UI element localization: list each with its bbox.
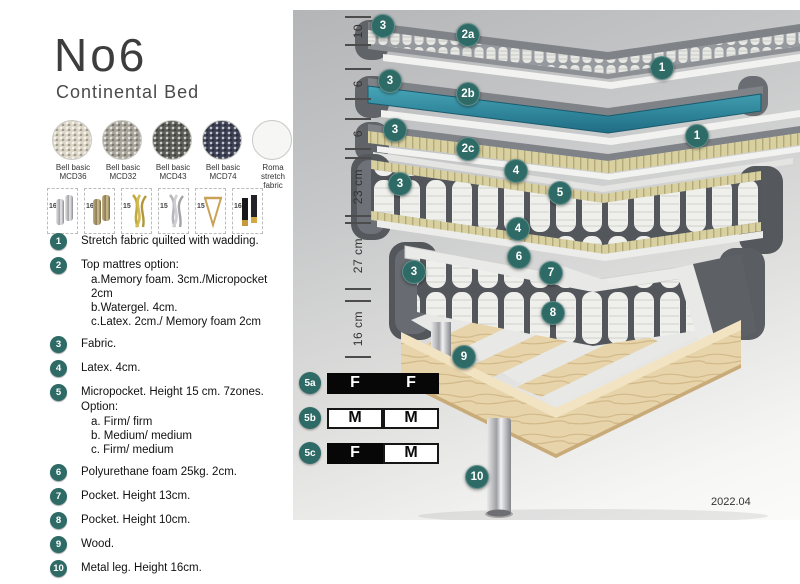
callout-badge: 10 [465, 465, 489, 489]
swatch-label: Bell basic [206, 163, 240, 172]
swatch-label: stretch fabric [261, 172, 285, 190]
callout-badge: 7 [539, 261, 563, 285]
firmness-cell: M [327, 408, 383, 429]
legend-item-suboption: c. Firm/ medium [91, 443, 288, 457]
legend-item-suboption: b. Medium/ medium [91, 429, 288, 443]
product-subtitle: Continental Bed [56, 82, 199, 103]
legend-item-text: Fabric. [81, 336, 116, 352]
callout-badge: 8 [541, 301, 565, 325]
dimension-ruler: 23 cm [337, 157, 379, 217]
dimension-label: 27 cm [351, 238, 365, 273]
firmness-row: 5b M M [299, 407, 439, 429]
firmness-cell: F [383, 373, 439, 394]
firmness-row-badge: 5b [299, 407, 321, 429]
callout-badge: 3 [402, 260, 426, 284]
tick-mark [345, 215, 371, 217]
dimension-label: 10 [351, 24, 365, 38]
legend-item: 9 Wood. [50, 536, 288, 553]
legend-item-number: 3 [50, 336, 67, 353]
tick-mark [345, 98, 371, 100]
legend-item: 6 Polyurethane foam 25kg. 2cm. [50, 464, 288, 481]
leg-option: 16 [47, 188, 78, 234]
swatch-label: MCD32 [109, 172, 136, 181]
tick-mark [345, 148, 371, 150]
twist-gold-leg-icon [128, 193, 150, 229]
legend-item-suboption: a. Firm/ firm [91, 415, 288, 429]
cylinder-silver-leg-icon [54, 193, 76, 229]
firmness-cell: F [327, 373, 383, 394]
legend-item: 8 Pocket. Height 10cm. [50, 512, 288, 529]
swatch-label: MCD43 [159, 172, 186, 181]
legend-item-text: Pocket. Height 10cm. [81, 512, 190, 528]
dimension-label: 16 cm [351, 311, 365, 346]
leg-option: 15 [195, 188, 226, 234]
fabric-swatch: Romastretch fabric [252, 120, 294, 190]
twist-silver-leg-icon [165, 193, 187, 229]
legend-item-number: 9 [50, 536, 67, 553]
leg-options-row: 16 16 15 [47, 188, 263, 234]
firmness-cell: F [327, 443, 383, 464]
version-label: 2022.04 [711, 496, 751, 508]
fabric-swatch-row: Bell basicMCD36 Bell basicMCD32 Bell bas… [52, 120, 294, 190]
legend-item: 1 Stretch fabric quilted with wadding. [50, 233, 288, 250]
callout-badge: 1 [650, 56, 674, 80]
callout-badge: 2a [456, 23, 480, 47]
callout-badge: 4 [506, 217, 530, 241]
callout-badge: 3 [388, 172, 412, 196]
dimension-ruler: 6 [337, 68, 379, 100]
dimension-label: 6 [351, 80, 365, 87]
leg-option: 16 [232, 188, 263, 234]
legend-item-text: Top mattres option: [81, 257, 288, 273]
swatch-label: Bell basic [156, 163, 190, 172]
infographic-canvas: No6 Continental Bed Bell basicMCD36 Bell… [0, 0, 800, 533]
legend-item-suboption: a.Memory foam. 3cm./Micropocket 2cm [91, 273, 288, 301]
legend-item: 5 Micropocket. Height 15 cm. 7zones. Opt… [50, 384, 288, 457]
firmness-cell: M [383, 408, 439, 429]
callout-badge: 3 [383, 118, 407, 142]
legend-item-number: 4 [50, 360, 67, 377]
tick-mark [345, 300, 371, 302]
legend-item-suboption: b.Watergel. 4cm. [91, 301, 288, 315]
firmness-row-badge: 5c [299, 442, 321, 464]
fabric-swatch-image [152, 120, 192, 160]
legend-item-text: Polyurethane foam 25kg. 2cm. [81, 464, 237, 480]
swatch-label: Bell basic [106, 163, 140, 172]
leg-option: 15 [121, 188, 152, 234]
tick-mark [345, 44, 371, 46]
callout-badge: 3 [371, 14, 395, 38]
bed-exploded-diagram: 10 6 6 23 cm 27 cm 16 cm 3 [293, 10, 800, 520]
legend-item-number: 7 [50, 488, 67, 505]
legend-item-number: 2 [50, 257, 67, 274]
tick-mark [345, 157, 371, 159]
tick-mark [345, 288, 371, 290]
firmness-row: 5c F M [299, 442, 439, 464]
swatch-label: MCD74 [209, 172, 236, 181]
leg-option: 16 [84, 188, 115, 234]
firmness-cell: M [383, 443, 439, 464]
cylinder-brass-leg-icon [91, 193, 113, 229]
dimension-label: 6 [351, 130, 365, 137]
legend-item: 4 Latex. 4cm. [50, 360, 288, 377]
legend-item-number: 5 [50, 384, 67, 401]
legend-item: 7 Pocket. Height 13cm. [50, 488, 288, 505]
callout-badge: 2b [456, 82, 480, 106]
fabric-swatch: Bell basicMCD74 [202, 120, 244, 190]
callout-badge: 9 [452, 345, 476, 369]
dimension-label: 23 cm [351, 169, 365, 204]
legend-item: 3 Fabric. [50, 336, 288, 353]
tick-mark [345, 16, 371, 18]
tick-mark [345, 356, 371, 358]
fabric-swatch-image [102, 120, 142, 160]
dimension-ruler: 16 cm [337, 300, 379, 358]
swatch-label: Bell basic [56, 163, 90, 172]
tick-mark [345, 118, 371, 120]
legend-item: 10 Metal leg. Height 16cm. [50, 560, 288, 577]
tick-mark [345, 68, 371, 70]
legend-item-text: Wood. [81, 536, 114, 552]
fabric-swatch-image [252, 120, 292, 160]
callout-badge: 2c [456, 137, 480, 161]
hairpin-leg-icon [202, 193, 224, 229]
legend-item-text: Pocket. Height 13cm. [81, 488, 190, 504]
layer-top-mattress-2a [355, 20, 800, 89]
legend-item-text: Metal leg. Height 16cm. [81, 560, 202, 576]
firmness-row-badge: 5a [299, 372, 321, 394]
fabric-swatch: Bell basicMCD32 [102, 120, 144, 190]
callout-badge: 1 [685, 124, 709, 148]
dimension-ruler: 6 [337, 118, 379, 150]
legend-list: 1 Stretch fabric quilted with wadding. 2… [50, 233, 288, 584]
legend-item-text: Latex. 4cm. [81, 360, 140, 376]
block-black-gold-leg-icon [239, 193, 261, 229]
firmness-option-table: 5a F F 5b M M 5c F M [299, 372, 439, 477]
callout-badge: 3 [378, 69, 402, 93]
fabric-swatch-image [52, 120, 92, 160]
dimension-ruler: 27 cm [337, 222, 379, 290]
legend-item-number: 1 [50, 233, 67, 250]
legend-item-suboption: c.Latex. 2cm./ Memory foam 2cm [91, 315, 288, 329]
legend-item: 2 Top mattres option: a.Memory foam. 3cm… [50, 257, 288, 329]
fabric-swatch-image [202, 120, 242, 160]
callout-badge: 5 [548, 181, 572, 205]
firmness-row: 5a F F [299, 372, 439, 394]
fabric-swatch: Bell basicMCD43 [152, 120, 194, 190]
fabric-swatch: Bell basicMCD36 [52, 120, 94, 190]
leg-option: 15 [158, 188, 189, 234]
info-panel: No6 Continental Bed Bell basicMCD36 Bell… [0, 0, 293, 533]
legend-item-text: Stretch fabric quilted with wadding. [81, 233, 259, 249]
callout-badge: 4 [504, 159, 528, 183]
callout-badge: 6 [507, 245, 531, 269]
legend-item-number: 10 [50, 560, 67, 577]
swatch-label: MCD36 [59, 172, 86, 181]
tick-mark [345, 222, 371, 224]
swatch-label: Roma [262, 163, 283, 172]
legend-item-number: 8 [50, 512, 67, 529]
product-title: No6 [54, 28, 147, 82]
legend-item-number: 6 [50, 464, 67, 481]
legend-item-text: Micropocket. Height 15 cm. 7zones. Optio… [81, 384, 288, 415]
